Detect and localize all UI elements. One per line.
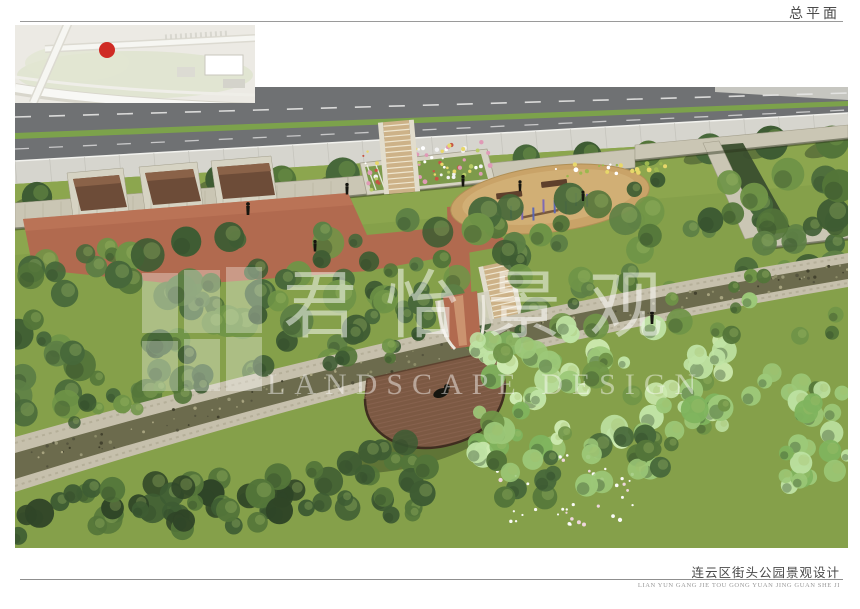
render-canvas (15, 87, 848, 548)
footer-pinyin: LIAN YUN GANG JIE TOU GONG YUAN JING GUA… (638, 582, 840, 589)
site-marker (99, 42, 115, 58)
inset-building (177, 67, 195, 77)
main-rendering: 君怡景观 LANDSCAPE DESIGN (15, 87, 848, 548)
inset-building (205, 55, 243, 75)
top-rule (20, 21, 843, 22)
location-inset-map (15, 25, 255, 103)
inset-building (223, 79, 245, 88)
presentation-sheet: 总平面 (0, 0, 860, 609)
inset-map-canvas (15, 25, 255, 103)
stairs (378, 120, 420, 195)
footer-title: 连云区街头公园景观设计 (691, 562, 840, 581)
sheet-title: 总平面 (789, 3, 840, 23)
